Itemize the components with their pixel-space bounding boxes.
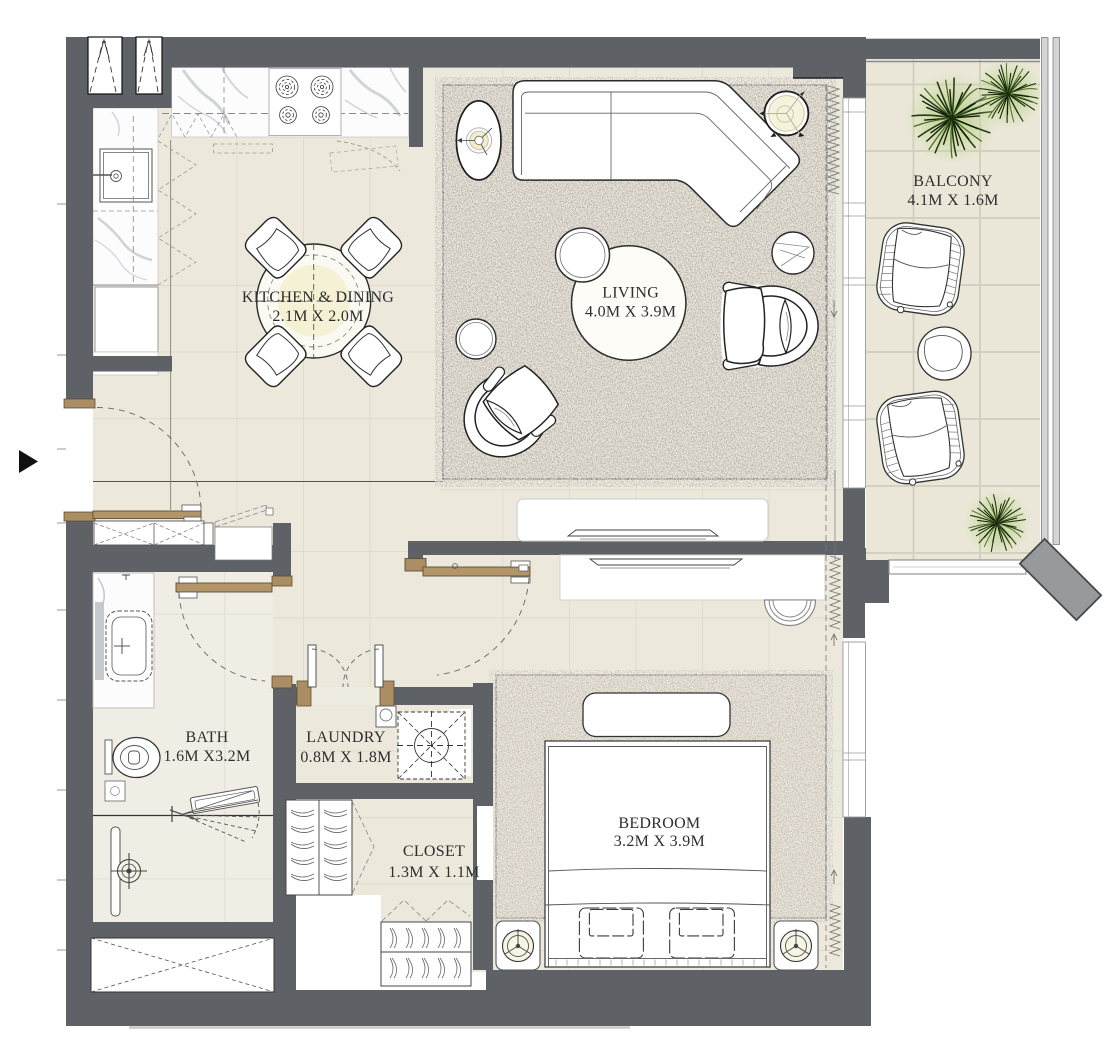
- svg-text:LAUNDRY: LAUNDRY: [306, 729, 386, 746]
- svg-text:BEDROOM: BEDROOM: [618, 815, 700, 832]
- svg-text:1.3M X 1.1M: 1.3M X 1.1M: [388, 864, 479, 881]
- svg-text:4.0M X 3.9M: 4.0M X 3.9M: [585, 304, 676, 321]
- svg-text:1.6M X3.2M: 1.6M X3.2M: [163, 748, 250, 765]
- svg-text:2.1M X 2.0M: 2.1M X 2.0M: [272, 308, 363, 325]
- svg-text:4.1M X 1.6M: 4.1M X 1.6M: [907, 192, 998, 209]
- svg-text:0.8M X 1.8M: 0.8M X 1.8M: [300, 749, 391, 766]
- svg-text:KITCHEN & DINING: KITCHEN & DINING: [242, 289, 394, 306]
- svg-text:BATH: BATH: [186, 729, 229, 746]
- svg-text:BALCONY: BALCONY: [913, 173, 993, 190]
- svg-text:3.2M X 3.9M: 3.2M X 3.9M: [614, 833, 705, 850]
- svg-text:CLOSET: CLOSET: [403, 843, 465, 860]
- svg-text:LIVING: LIVING: [602, 285, 659, 302]
